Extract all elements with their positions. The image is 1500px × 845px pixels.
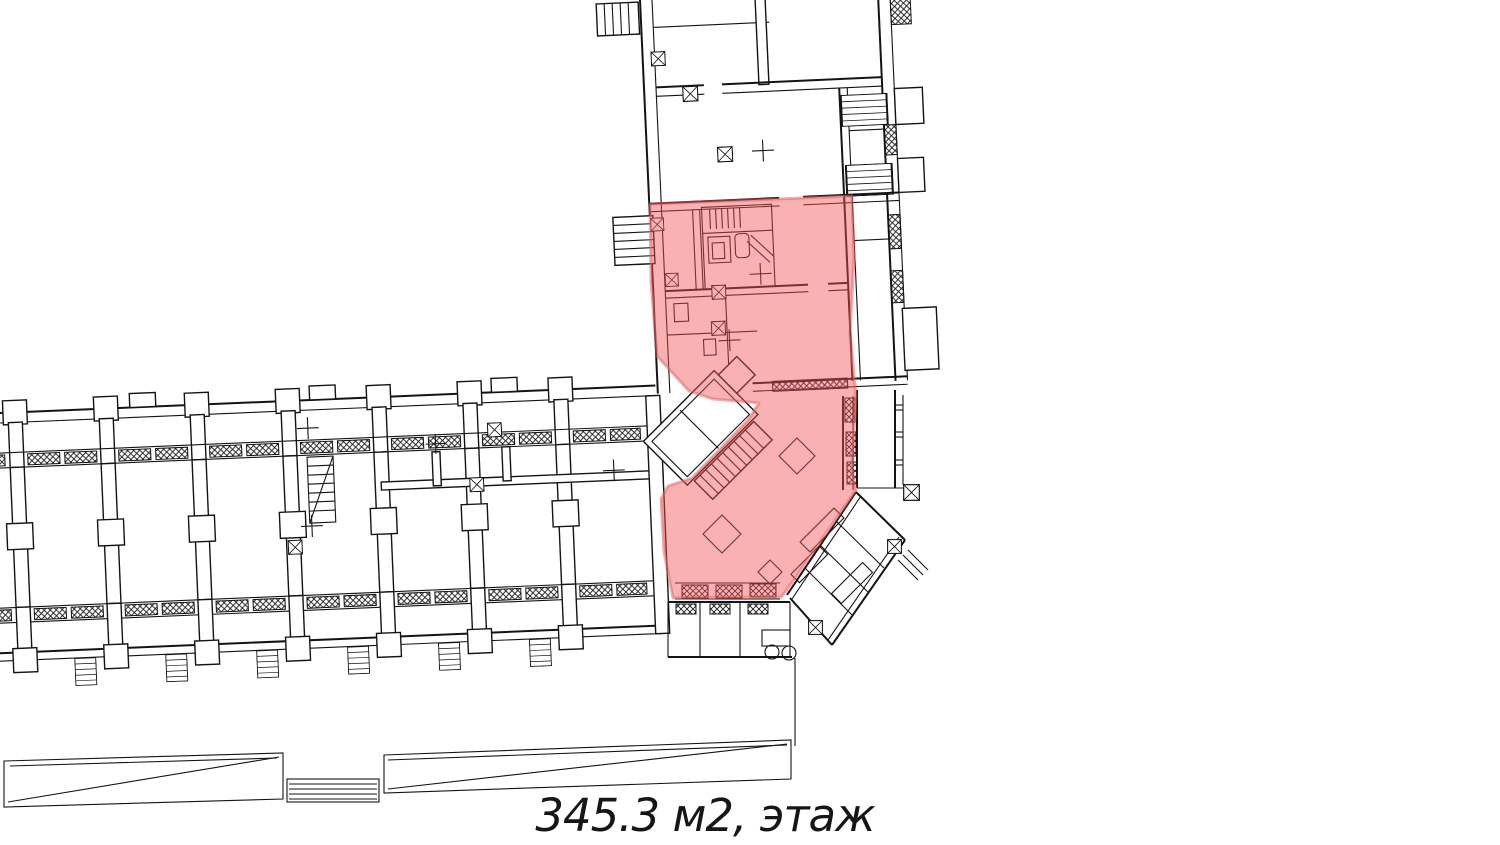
plan-caption: 345.3 м2, этаж 1	[520, 792, 890, 845]
entrance-porch	[762, 630, 796, 660]
stair-glyph	[307, 456, 336, 523]
left-stair-box	[613, 216, 655, 266]
window-band-top	[0, 428, 641, 466]
left-wing	[0, 371, 671, 689]
floorplan-page: 345.3 м2, этаж 1	[0, 0, 1500, 845]
terrace-ramps	[4, 658, 795, 807]
floorplan-svg	[0, 0, 1500, 845]
room-dividers	[4, 444, 581, 608]
top-left-stair-box	[596, 2, 639, 36]
corner-room-block	[857, 390, 919, 500]
window-band-bottom	[0, 581, 648, 653]
